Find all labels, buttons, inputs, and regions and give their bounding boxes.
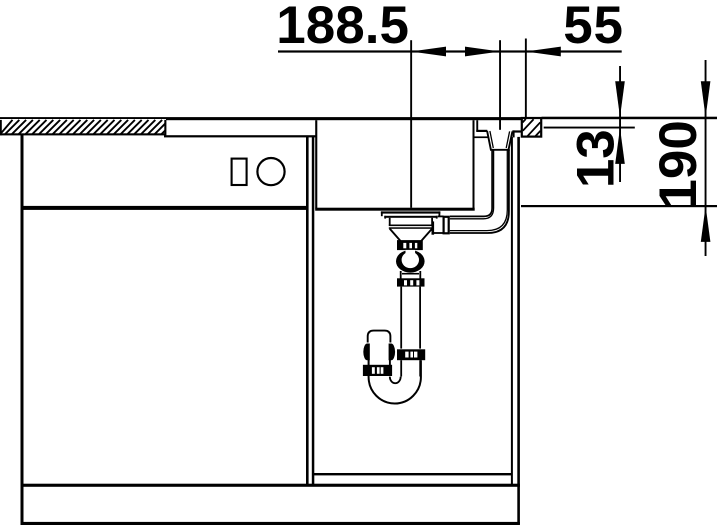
svg-text:190: 190 <box>649 120 708 208</box>
svg-text:55: 55 <box>563 0 624 55</box>
svg-text:188.5: 188.5 <box>276 0 409 55</box>
svg-text:13: 13 <box>566 129 625 188</box>
